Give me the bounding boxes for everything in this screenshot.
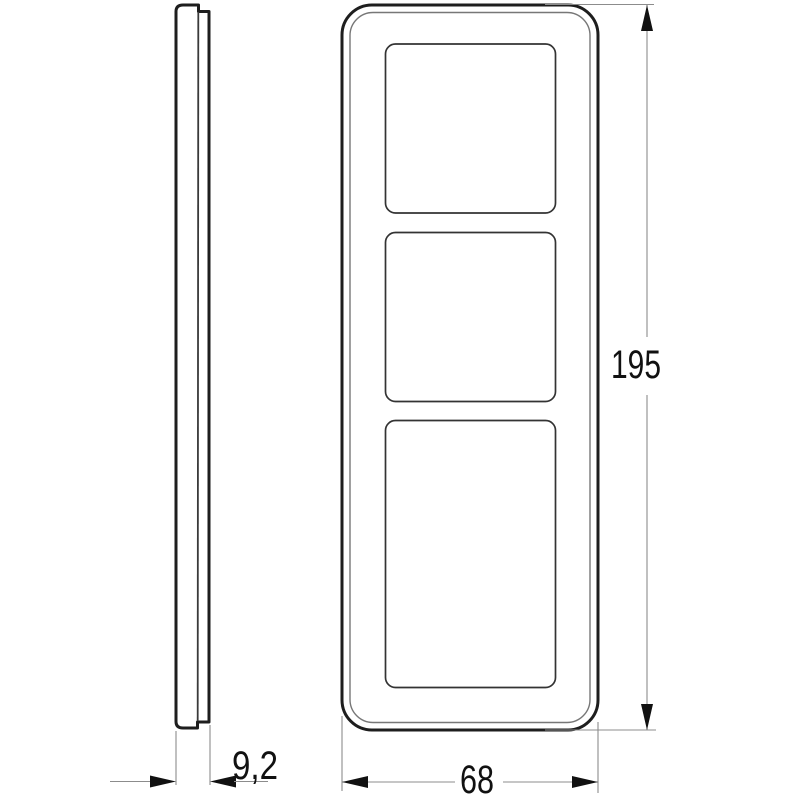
dimension-height: 195 <box>545 5 661 731</box>
dimension-depth: 9,2 <box>110 725 278 788</box>
arrowhead-up-icon <box>641 5 653 31</box>
arrowhead-right-icon <box>150 776 176 788</box>
opening-2 <box>386 233 556 402</box>
front-view <box>342 5 598 730</box>
opening-1 <box>386 44 556 213</box>
side-profile-outline <box>176 5 209 728</box>
dim-height-label: 195 <box>611 343 661 387</box>
drawing-canvas: 9,2 68 195 <box>0 0 800 800</box>
side-profile-step-edge <box>198 12 199 721</box>
dim-depth-label: 9,2 <box>232 744 278 788</box>
arrowhead-right-icon <box>572 776 598 788</box>
technical-drawing: 9,2 68 195 <box>0 0 800 800</box>
dim-width-label: 68 <box>460 758 494 800</box>
arrowhead-down-icon <box>641 704 653 730</box>
frame-outer-contour <box>342 5 598 730</box>
arrowhead-left-icon <box>342 776 368 788</box>
side-view <box>176 5 209 728</box>
opening-3 <box>386 421 556 688</box>
